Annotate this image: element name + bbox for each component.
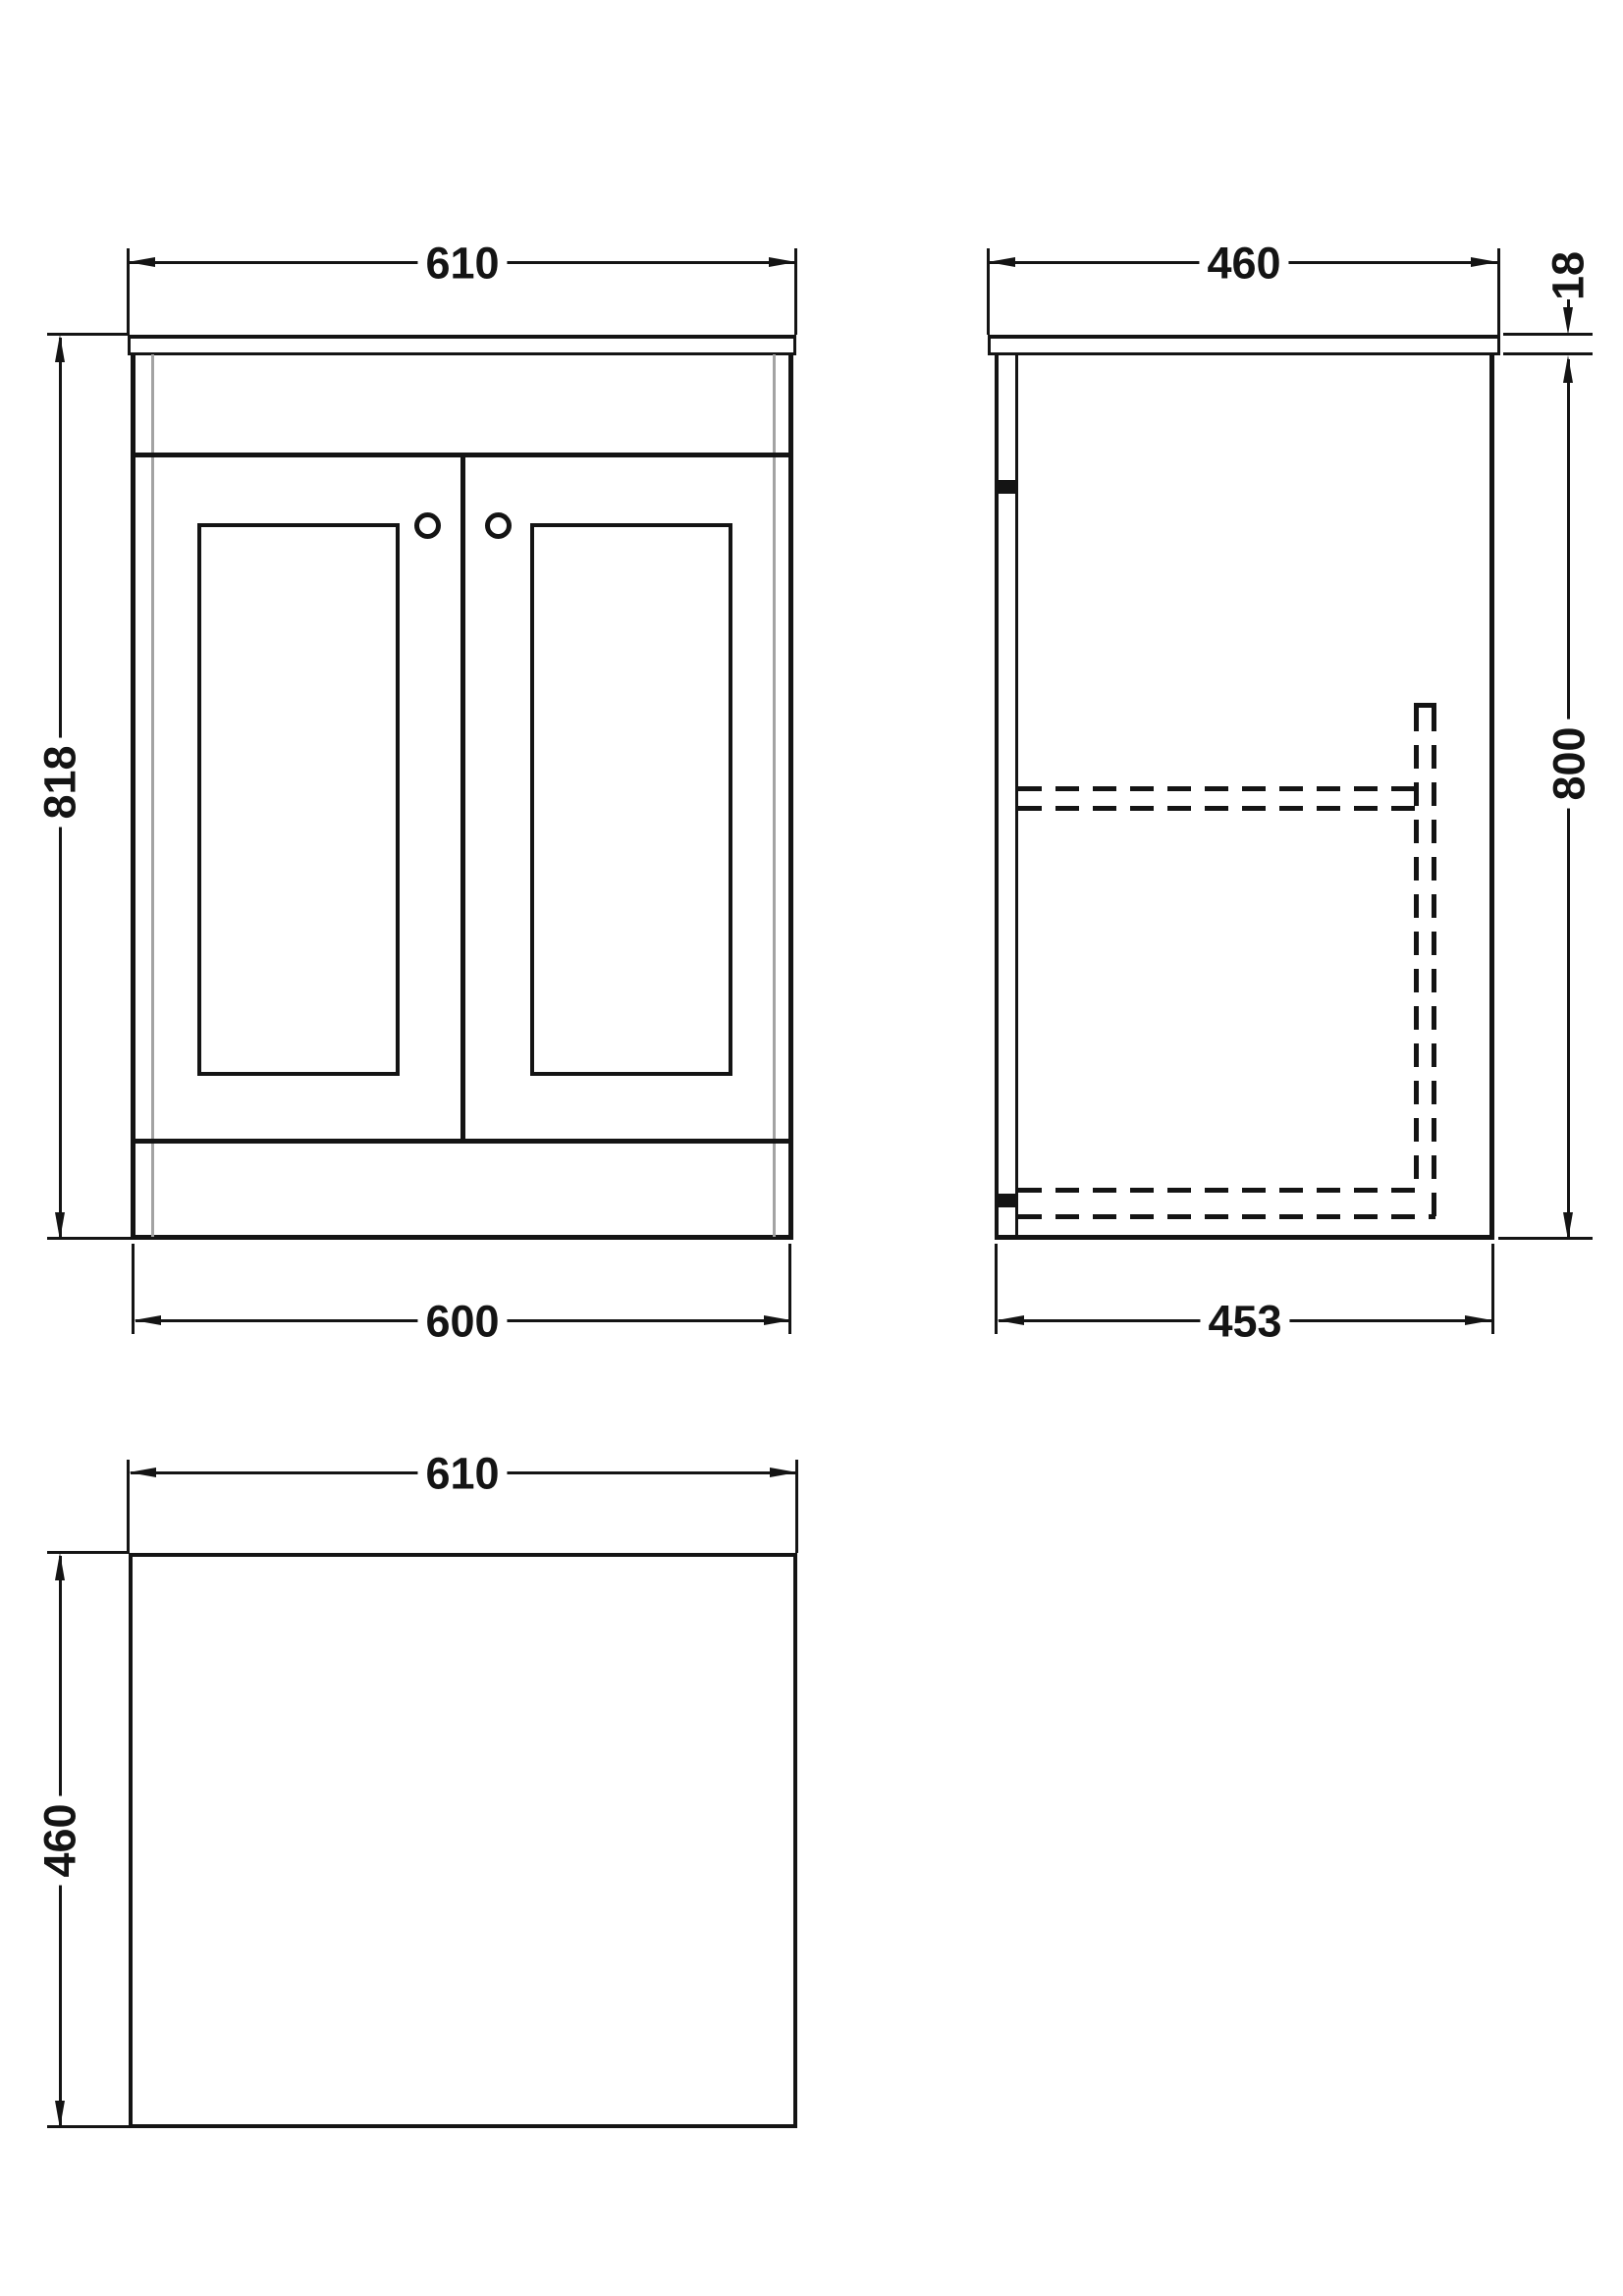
arrowhead-right-icon	[769, 257, 796, 267]
front-dim-818-label: 818	[35, 737, 84, 827]
side-back-edge	[1489, 354, 1494, 1240]
arrowhead-down-icon	[55, 1212, 65, 1240]
side-hidden-shelf-top-line	[1018, 786, 1416, 791]
front-worktop	[128, 335, 796, 355]
arrowhead-left-icon	[128, 257, 155, 267]
side-dim-453-ext-right	[1491, 1244, 1494, 1334]
side-dim-460-ext-right	[1497, 248, 1500, 335]
side-dim-453-ext-left	[995, 1244, 998, 1334]
front-dim-818-ext-top	[47, 333, 128, 336]
plan-dim-460-ext-top	[47, 1551, 129, 1554]
front-left-panel-gray-line	[151, 354, 154, 1237]
front-right-panel-gray-line	[773, 354, 776, 1237]
arrowhead-right-icon	[1465, 1315, 1492, 1325]
front-dim-610-label: 610	[417, 239, 507, 288]
arrowhead-left-icon	[997, 1315, 1024, 1325]
side-dim-800-label: 800	[1544, 719, 1594, 808]
side-dim-460-label: 460	[1199, 239, 1288, 288]
side-hidden-bottom-top-line	[1018, 1188, 1416, 1193]
arrowhead-right-icon	[764, 1315, 791, 1325]
side-dim-18-ext-bottom	[1503, 352, 1593, 355]
side-dim-800-ext-bottom	[1498, 1237, 1593, 1240]
door-knob-left-icon	[414, 512, 441, 539]
arrowhead-right-icon	[1471, 257, 1498, 267]
plan-dim-610-ext-right	[795, 1460, 798, 1553]
front-door-panel-right	[530, 523, 732, 1076]
front-dim-610-ext-right	[794, 248, 797, 335]
front-dim-600-ext-left	[132, 1244, 135, 1334]
side-bottom-mark-icon	[995, 1194, 1018, 1207]
plan-dim-460-label: 460	[35, 1795, 84, 1885]
arrowhead-down-icon	[1563, 307, 1573, 335]
technical-drawing-canvas: 610 818 600	[0, 0, 1623, 2296]
front-door-panel-left	[197, 523, 400, 1076]
arrowhead-down-icon	[55, 2101, 65, 2128]
front-dim-600-label: 600	[417, 1297, 507, 1346]
side-dim-460-ext-left	[987, 248, 990, 335]
side-hidden-shelf-bottom-line	[1018, 806, 1416, 811]
arrowhead-left-icon	[129, 1468, 156, 1477]
side-hidden-bottom-bottom-line	[1018, 1214, 1435, 1219]
front-dim-818-ext-bottom	[47, 1237, 132, 1240]
side-bottom-edge	[995, 1235, 1494, 1240]
arrowhead-left-icon	[988, 257, 1015, 267]
arrowhead-up-icon	[55, 335, 65, 362]
door-knob-right-icon	[485, 512, 512, 539]
plan-dim-610-label: 610	[417, 1449, 507, 1498]
side-dim-453-label: 453	[1200, 1297, 1289, 1346]
plan-dim-610-ext-left	[127, 1460, 130, 1553]
arrowhead-left-icon	[134, 1315, 161, 1325]
front-body-bottom-edge	[131, 1235, 793, 1240]
side-hidden-panel-back-line	[1432, 708, 1436, 1219]
plan-worktop-outline	[129, 1553, 797, 2128]
side-hidden-panel-front-line	[1414, 708, 1419, 1193]
plan-dim-460-ext-bottom	[47, 2125, 129, 2128]
front-dim-610-ext-left	[127, 248, 130, 335]
arrowhead-right-icon	[770, 1468, 797, 1477]
arrowhead-down-icon	[1563, 1212, 1573, 1240]
front-dim-600-ext-right	[788, 1244, 791, 1334]
front-body-left-edge	[131, 354, 135, 1240]
front-body-right-edge	[788, 354, 793, 1240]
side-dim-18-ext-top	[1503, 333, 1593, 336]
side-worktop	[988, 335, 1500, 355]
side-knob-mark-icon	[995, 480, 1018, 494]
front-door-split-line	[460, 453, 465, 1144]
arrowhead-up-icon	[55, 1553, 65, 1580]
